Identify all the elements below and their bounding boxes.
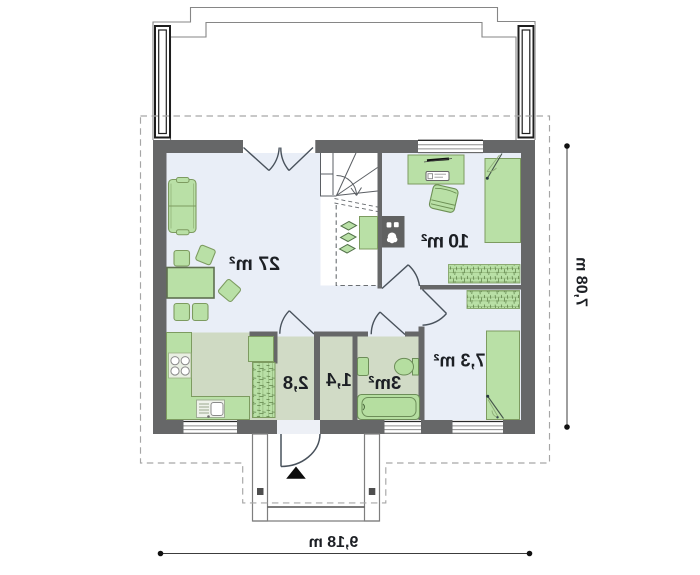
svg-text:7,3 m²: 7,3 m² (433, 351, 485, 371)
svg-text:10 m²: 10 m² (420, 231, 469, 253)
svg-text:9,18 m: 9,18 m (309, 534, 359, 551)
svg-text:27 m²: 27 m² (229, 253, 280, 275)
svg-text:3m²: 3m² (368, 372, 401, 393)
svg-text:2,8: 2,8 (283, 372, 309, 393)
svg-text:7,08 m: 7,08 m (573, 257, 590, 307)
svg-text:1,4: 1,4 (325, 369, 351, 390)
